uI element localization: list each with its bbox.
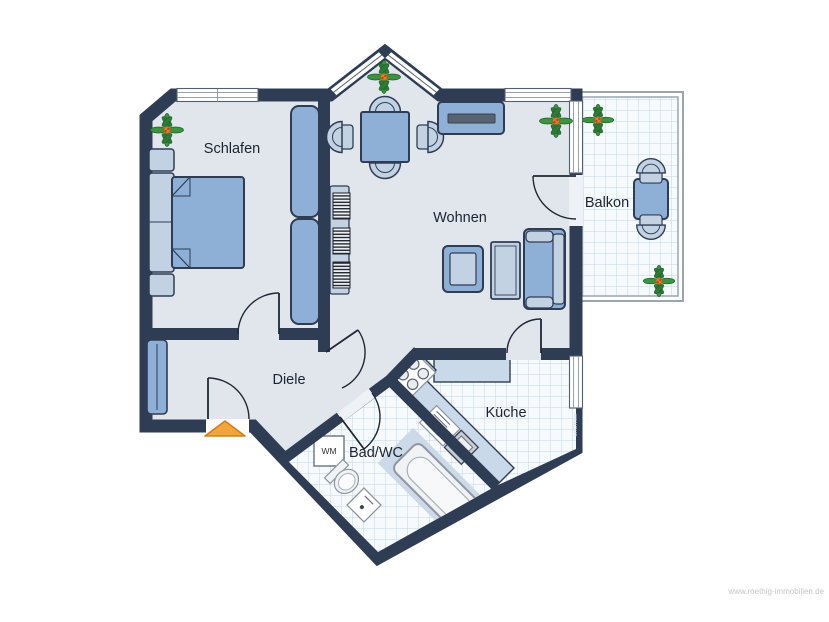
radiator-shelf <box>330 186 350 294</box>
dining-chair <box>327 122 354 153</box>
dining-table <box>361 112 409 162</box>
floorplan-canvas: WM <box>0 0 829 622</box>
wardrobe <box>291 106 319 217</box>
hall-closet <box>147 340 167 414</box>
floorplan-page: WM <box>0 0 829 622</box>
washing-machine-label: WM <box>321 446 336 456</box>
coffee-table <box>491 242 520 299</box>
kitchen-window <box>570 356 583 408</box>
bedroom-window <box>177 89 258 102</box>
tv-icon <box>448 114 495 123</box>
washing-machine: WM <box>314 436 344 466</box>
room-label-diele: Diele <box>272 372 305 388</box>
balcony-window <box>570 101 583 173</box>
onoffice-brand-watermark: onOffice <box>573 414 579 437</box>
room-label-schlafen: Schlafen <box>204 141 260 157</box>
double-bed <box>149 173 244 272</box>
sofa <box>524 229 565 309</box>
room-label-wohnen: Wohnen <box>433 210 487 226</box>
sideboard-tv <box>438 102 504 134</box>
nightstand <box>149 274 174 296</box>
balcony-table <box>634 179 668 219</box>
room-label-balkon: Balkon <box>585 195 629 211</box>
agency-website-watermark: www.roethig-immobilien.de <box>727 587 824 596</box>
balcony-chair <box>637 215 666 239</box>
livingroom-top-window <box>505 89 571 102</box>
armchair <box>443 246 483 292</box>
room-label-bad-wc: Bad/WC <box>349 445 403 461</box>
wardrobe <box>291 219 319 324</box>
nightstand <box>149 149 174 171</box>
balcony-chair <box>637 159 666 183</box>
room-label-kueche: Küche <box>485 405 526 421</box>
